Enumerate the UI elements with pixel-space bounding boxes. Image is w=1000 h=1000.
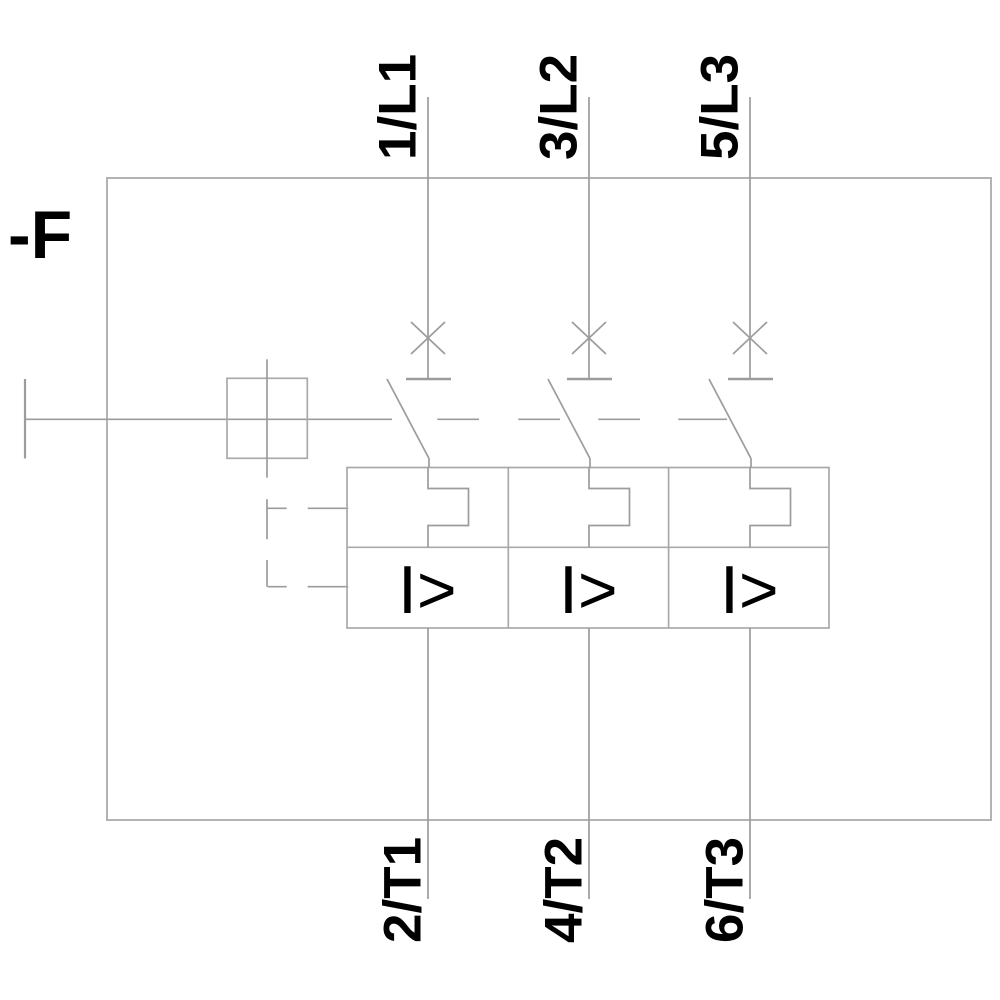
pole-2-overcurrent-trip-symbol: I> (559, 552, 618, 628)
trip-linkage-dashed (267, 419, 727, 586)
pole-1-contact-blade (387, 379, 429, 459)
pole-1-top-terminal-label: 1/L1 (369, 54, 428, 160)
pole-3: I> 5/L3 6/T3 (691, 54, 791, 943)
pole-1-bottom-terminal-label: 2/T1 (374, 837, 433, 943)
operating-mechanism (25, 359, 392, 477)
pole-2-thermal-overload-element (589, 468, 630, 548)
pole-3-thermal-overload-element (750, 468, 791, 548)
pole-3-overcurrent-trip-symbol: I> (720, 552, 779, 628)
pole-3-bottom-terminal-label: 6/T3 (696, 837, 755, 943)
enclosure-outline (107, 178, 991, 820)
circuit-breaker-schematic: -F I> 1/L1 2/T1 (0, 0, 1000, 1000)
pole-1-overcurrent-trip-symbol: I> (398, 552, 457, 628)
pole-3-top-terminal-label: 5/L3 (691, 54, 750, 160)
pole-2-top-terminal-label: 3/L2 (530, 54, 589, 160)
pole-1-thermal-overload-element (428, 468, 469, 548)
pole-1: I> 1/L1 2/T1 (369, 54, 469, 943)
schematic-canvas: -F I> 1/L1 2/T1 (0, 0, 1000, 1000)
pole-2-bottom-terminal-label: 4/T2 (535, 837, 594, 943)
device-designation-label: -F (8, 197, 72, 273)
pole-2: I> 3/L2 4/T2 (530, 54, 630, 943)
